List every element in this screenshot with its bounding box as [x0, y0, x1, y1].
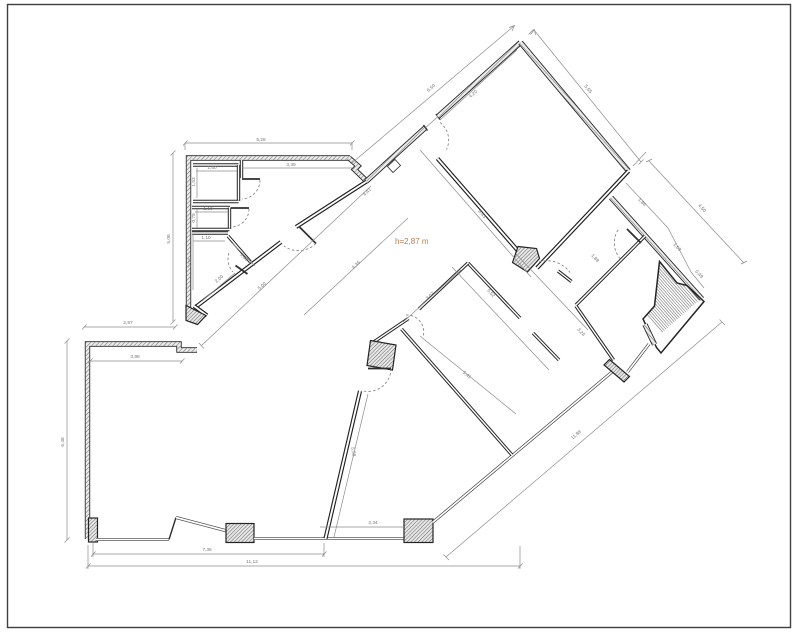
svg-text:11,12: 11,12 [246, 559, 258, 565]
svg-text:4,50: 4,50 [696, 203, 707, 214]
svg-text:5,00: 5,00 [257, 281, 268, 292]
svg-text:1,50: 1,50 [207, 165, 217, 171]
svg-text:0,79: 0,79 [191, 213, 197, 223]
svg-text:3,39: 3,39 [286, 162, 296, 168]
svg-text:1,86: 1,86 [636, 197, 647, 208]
svg-text:3,24: 3,24 [575, 327, 586, 338]
svg-text:h=2,87 m: h=2,87 m [395, 237, 429, 246]
svg-text:1,10: 1,10 [201, 235, 211, 241]
svg-text:2,97: 2,97 [123, 320, 133, 326]
svg-text:5,28: 5,28 [256, 137, 266, 143]
svg-text:4,41: 4,41 [362, 187, 373, 198]
svg-text:5,65: 5,65 [582, 84, 593, 95]
svg-text:2,03: 2,03 [187, 258, 193, 268]
svg-text:5,08: 5,08 [166, 234, 172, 244]
svg-text:6,43: 6,43 [476, 209, 487, 220]
svg-text:7,36: 7,36 [202, 547, 212, 553]
svg-text:0,49: 0,49 [693, 269, 704, 280]
svg-text:11,88: 11,88 [570, 429, 583, 441]
svg-text:6,48: 6,48 [60, 437, 66, 447]
svg-text:4,36: 4,36 [351, 260, 362, 271]
svg-text:1,53: 1,53 [191, 177, 197, 187]
svg-text:5,58: 5,58 [349, 447, 357, 458]
svg-text:1,13: 1,13 [203, 206, 213, 212]
svg-text:1,88: 1,88 [589, 253, 600, 264]
svg-text:3,98: 3,98 [130, 354, 140, 360]
svg-text:5,41: 5,41 [461, 370, 472, 381]
svg-text:6,50: 6,50 [426, 83, 437, 94]
svg-text:2,34: 2,34 [368, 520, 378, 526]
svg-text:1,69: 1,69 [671, 242, 682, 253]
